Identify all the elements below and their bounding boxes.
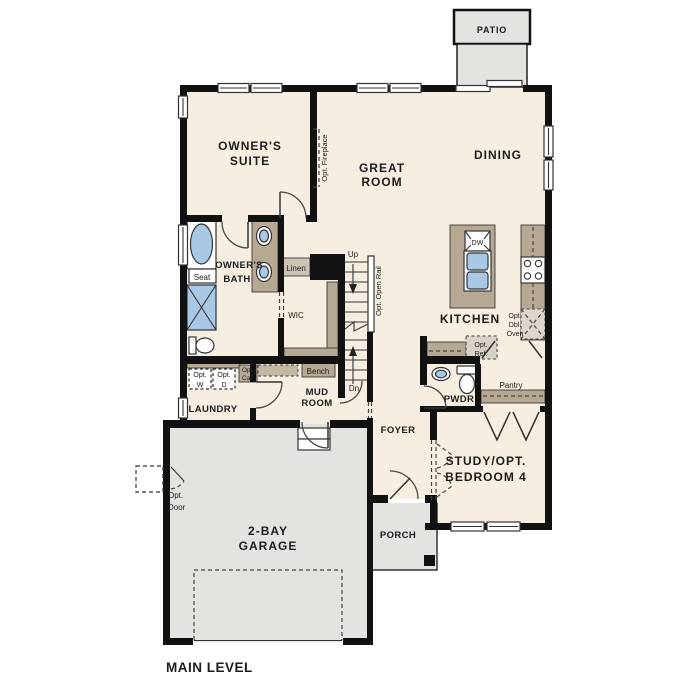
owners-bath-label: OWNER'S [215,260,263,271]
pantry-label: Pantry [499,381,522,390]
sink-bowl-2 [467,272,488,289]
owners-suite-label: SUITE [230,154,270,168]
patio-label: PATIO [477,25,507,35]
kitchen-label: KITCHEN [440,312,500,326]
dw-label: DW [472,240,484,247]
owners-suite-label: OWNER'S [218,139,282,153]
pwdr-label: PWDR [444,394,475,405]
opt-open-rail-label: Opt. Open Rail [374,266,383,316]
owners-bath-label: BATH [223,274,250,285]
garage-label: 2-BAY [248,524,288,538]
mud-room-label: ROOM [301,398,332,409]
opt-oven-label: Opt. [508,313,521,320]
toilet-tank [189,337,196,354]
porch-post [424,555,435,566]
porch-label: PORCH [380,530,416,541]
floor-plan-canvas: PATIO OWNER'S SUITE GREAT ROOM DINING KI… [0,0,687,687]
opt-door-label: Opt. [168,491,183,500]
opt-door-label: Door [168,503,186,512]
foyer-label: FOYER [381,425,416,436]
study-label: STUDY/OPT. [446,454,527,468]
main-level-title: MAIN LEVEL [166,660,253,675]
great-room-label: GREAT [359,161,405,175]
wic-label: WIC [288,311,304,320]
range [521,257,545,283]
toilet-bowl [196,338,214,353]
opt-dryer-label: D [221,382,226,389]
seat-label: Seat [194,273,211,282]
opt-cab-label: Opt. [242,367,254,374]
linen-label: Linen [286,264,306,273]
stairs-dn-label: Dn [349,384,359,393]
vanity-sink-1-bowl [260,230,269,242]
opt-oven-label: Oven [507,331,524,338]
opt-double-oven [521,309,545,339]
great-room-label: ROOM [361,175,402,189]
stairs-up-label: Up [348,250,359,259]
laundry-label: LAUNDRY [189,404,238,415]
sink-bowl-1 [467,253,488,270]
opt-washer-label: W [197,382,204,389]
tub-basin [191,224,213,264]
bench-label: Bench [307,367,330,376]
pwdr-toilet-tank [457,366,477,374]
mud-room-label: MUD [306,387,329,398]
wic-shelf-side [327,282,338,348]
opt-ref-label: Ref. [475,351,488,358]
garage-label: GARAGE [239,539,298,553]
pwdr-sink-bowl [436,370,447,378]
opt-cab-label: Cab [242,375,254,382]
opt-washer-label: Opt. [193,372,206,379]
opt-fireplace-label: Opt. Fireplace [320,134,329,181]
study-label: BEDROOM 4 [445,470,527,484]
opt-cubbies [258,365,298,376]
pwdr-toilet-bowl [460,375,475,394]
dining-label: DINING [474,148,522,162]
opt-dryer-label: Opt. [217,372,230,379]
floor-areas [166,10,549,642]
opt-ref-label: Opt. [474,342,487,349]
opt-oven-label: Dbl. [509,322,522,329]
